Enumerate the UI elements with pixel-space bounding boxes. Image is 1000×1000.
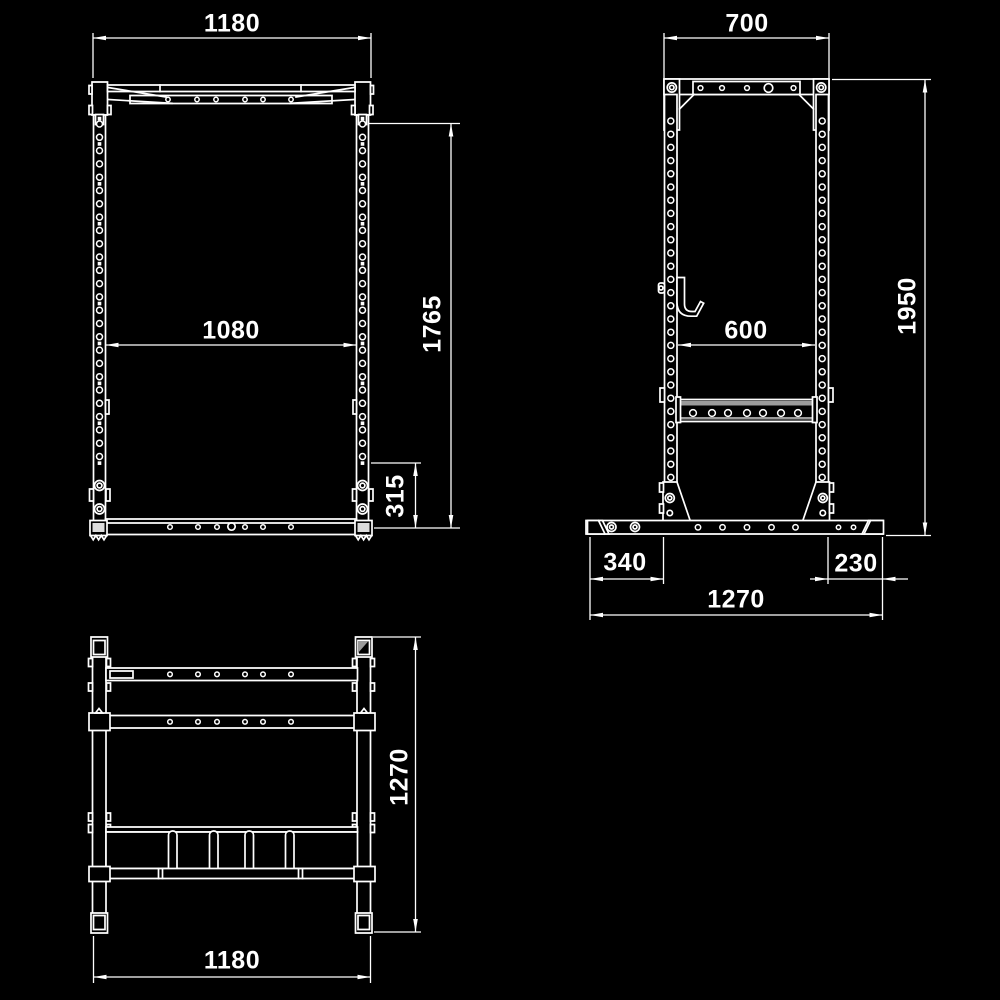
top-right-rail [357, 640, 371, 930]
power-rack-dimension-drawing: 1180 1080 1765 315 700 600 1950 340 230 … [0, 0, 1000, 1000]
drawing-linework [0, 0, 1000, 1000]
top-crossbar-1 [106, 668, 358, 681]
front-frame [89, 82, 374, 540]
top-rear-crossbar [106, 869, 358, 879]
front-right-end-cap [355, 82, 371, 115]
dim-front-overall-height-label: 1765 [421, 295, 446, 353]
front-left-end-cap [92, 82, 108, 115]
pull-up-bar [108, 85, 356, 92]
j-hook [677, 278, 704, 317]
dim-side-base-depth-label: 1270 [707, 588, 765, 613]
top-crossbar-2 [106, 716, 358, 729]
dim-side-overall-height-label: 1950 [896, 277, 921, 335]
dim-front-overall-width-label: 1180 [204, 12, 260, 37]
front-view [89, 33, 460, 540]
front-bottom-crossbar [106, 519, 357, 535]
dim-side-inner-depth-label: 600 [724, 319, 767, 344]
front-dimension-lines [93, 33, 460, 528]
side-frame [586, 79, 884, 534]
dim-top-width-label: 1180 [204, 949, 260, 974]
dim-front-base-height-label: 315 [384, 474, 409, 517]
top-frame [89, 637, 376, 933]
top-left-rail [93, 640, 107, 930]
dim-side-top-width-label: 700 [725, 12, 768, 37]
dim-side-rear-offset-label: 230 [834, 552, 877, 577]
dim-side-front-offset-label: 340 [603, 551, 646, 576]
top-storage-tray [106, 832, 358, 869]
top-view [89, 637, 422, 983]
dim-top-depth-label: 1270 [388, 748, 413, 806]
dim-front-inner-width-label: 1080 [202, 319, 260, 344]
